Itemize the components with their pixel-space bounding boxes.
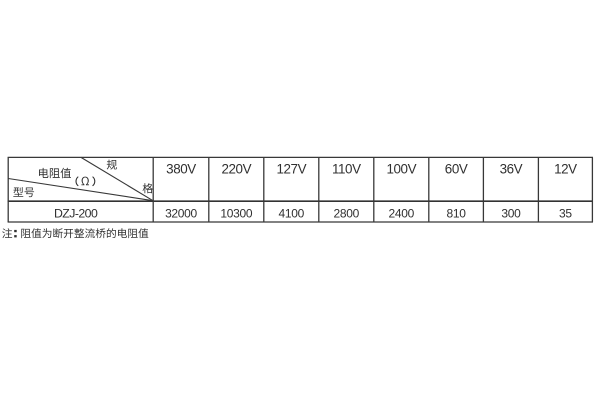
svg-text:60V: 60V	[445, 162, 468, 177]
svg-text:380V: 380V	[166, 162, 196, 177]
svg-text:110V: 110V	[332, 162, 361, 177]
svg-text:12V: 12V	[554, 162, 577, 177]
svg-text:DZJ-200: DZJ-200	[54, 207, 98, 221]
svg-text:300: 300	[501, 207, 521, 221]
svg-text:100V: 100V	[386, 162, 416, 177]
svg-text:10300: 10300	[220, 207, 252, 221]
svg-text:220V: 220V	[221, 162, 251, 177]
svg-text:127V: 127V	[276, 162, 306, 177]
svg-text:35: 35	[559, 207, 572, 221]
svg-text:2800: 2800	[334, 207, 360, 221]
svg-text:32000: 32000	[165, 207, 197, 221]
svg-text:4100: 4100	[279, 207, 305, 221]
svg-text:810: 810	[447, 207, 467, 221]
svg-text:36V: 36V	[500, 162, 523, 177]
svg-text:2400: 2400	[389, 207, 415, 221]
